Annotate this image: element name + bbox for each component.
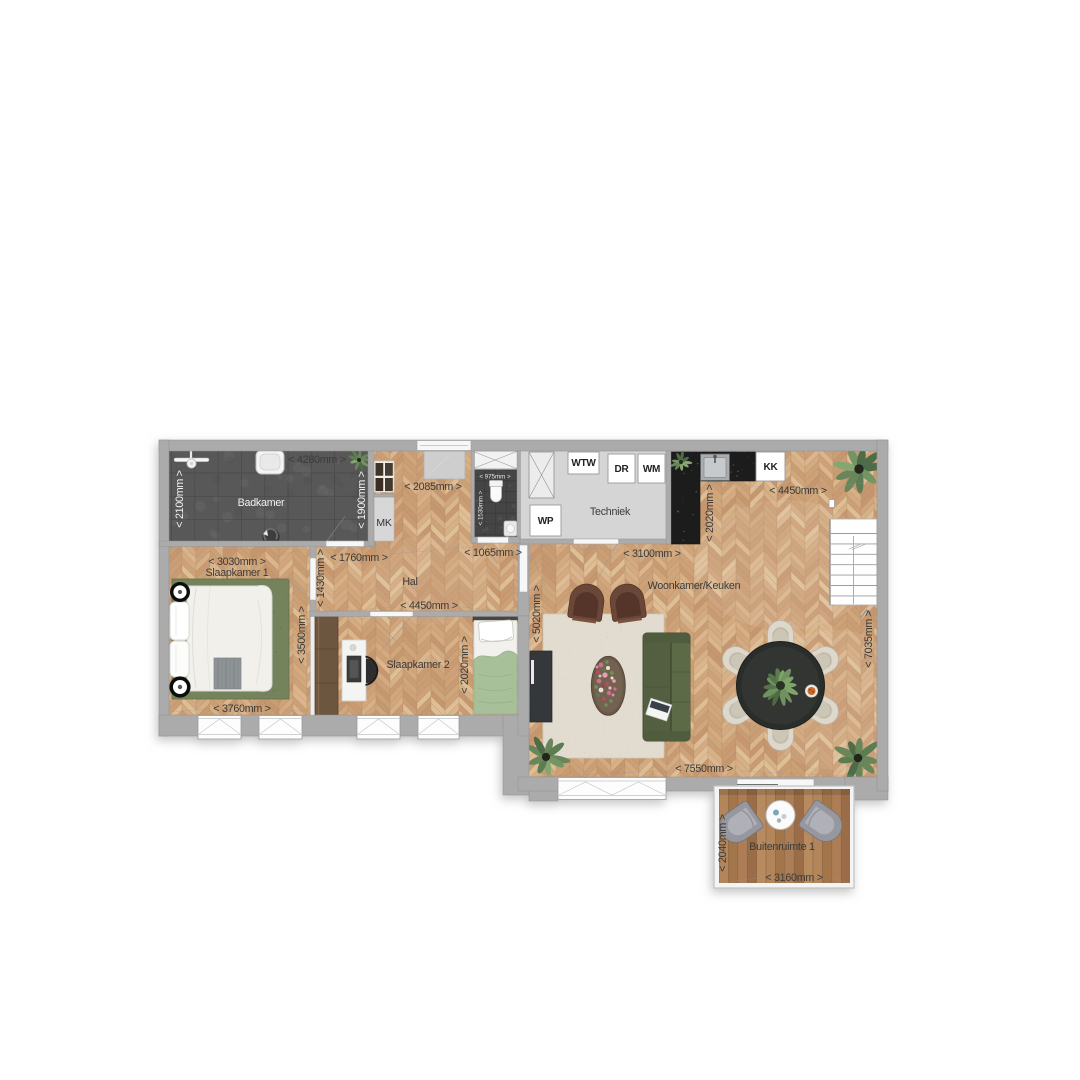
svg-text:< 975mm >: < 975mm > xyxy=(479,474,511,481)
svg-text:< 7035mm >: < 7035mm > xyxy=(863,610,875,668)
svg-text:Slaapkamer 2: Slaapkamer 2 xyxy=(387,659,450,671)
svg-text:< 3760mm >: < 3760mm > xyxy=(213,703,271,715)
svg-text:< 2040mm >: < 2040mm > xyxy=(717,814,729,872)
svg-text:< 2020mm >: < 2020mm > xyxy=(459,636,471,694)
svg-text:KK: KK xyxy=(764,462,779,473)
svg-text:Hal: Hal xyxy=(402,576,417,588)
svg-text:Buitenruimte 1: Buitenruimte 1 xyxy=(749,841,815,853)
svg-text:< 1065mm >: < 1065mm > xyxy=(464,547,522,559)
svg-text:Badkamer: Badkamer xyxy=(238,497,285,509)
svg-text:WM: WM xyxy=(643,464,660,475)
svg-text:< 4280mm >: < 4280mm > xyxy=(288,454,346,466)
svg-text:< 3500mm >: < 3500mm > xyxy=(296,606,308,664)
svg-text:< 2020mm >: < 2020mm > xyxy=(704,484,716,542)
svg-text:< 3100mm >: < 3100mm > xyxy=(623,548,681,560)
svg-text:< 7550mm >: < 7550mm > xyxy=(675,763,733,775)
svg-text:Woonkamer/Keuken: Woonkamer/Keuken xyxy=(648,580,741,592)
svg-text:< 4450mm >: < 4450mm > xyxy=(400,600,458,612)
svg-text:< 4450mm >: < 4450mm > xyxy=(769,485,827,497)
svg-text:< 1900mm >: < 1900mm > xyxy=(356,471,368,529)
svg-text:< 2100mm >: < 2100mm > xyxy=(174,470,186,528)
svg-text:Techniek: Techniek xyxy=(590,506,631,518)
svg-text:MK: MK xyxy=(376,517,391,529)
svg-text:WP: WP xyxy=(538,516,554,527)
svg-text:< 5020mm >: < 5020mm > xyxy=(531,585,543,643)
svg-text:< 1760mm >: < 1760mm > xyxy=(330,552,388,564)
svg-text:WTW: WTW xyxy=(571,458,596,469)
svg-text:Slaapkamer 1: Slaapkamer 1 xyxy=(206,567,269,579)
svg-text:DR: DR xyxy=(615,464,630,475)
svg-text:< 2085mm >: < 2085mm > xyxy=(404,481,462,493)
svg-text:< 1430mm >: < 1430mm > xyxy=(315,549,327,607)
svg-text:< 3160mm >: < 3160mm > xyxy=(765,872,823,884)
svg-text:< 1530mm >: < 1530mm > xyxy=(478,490,485,525)
